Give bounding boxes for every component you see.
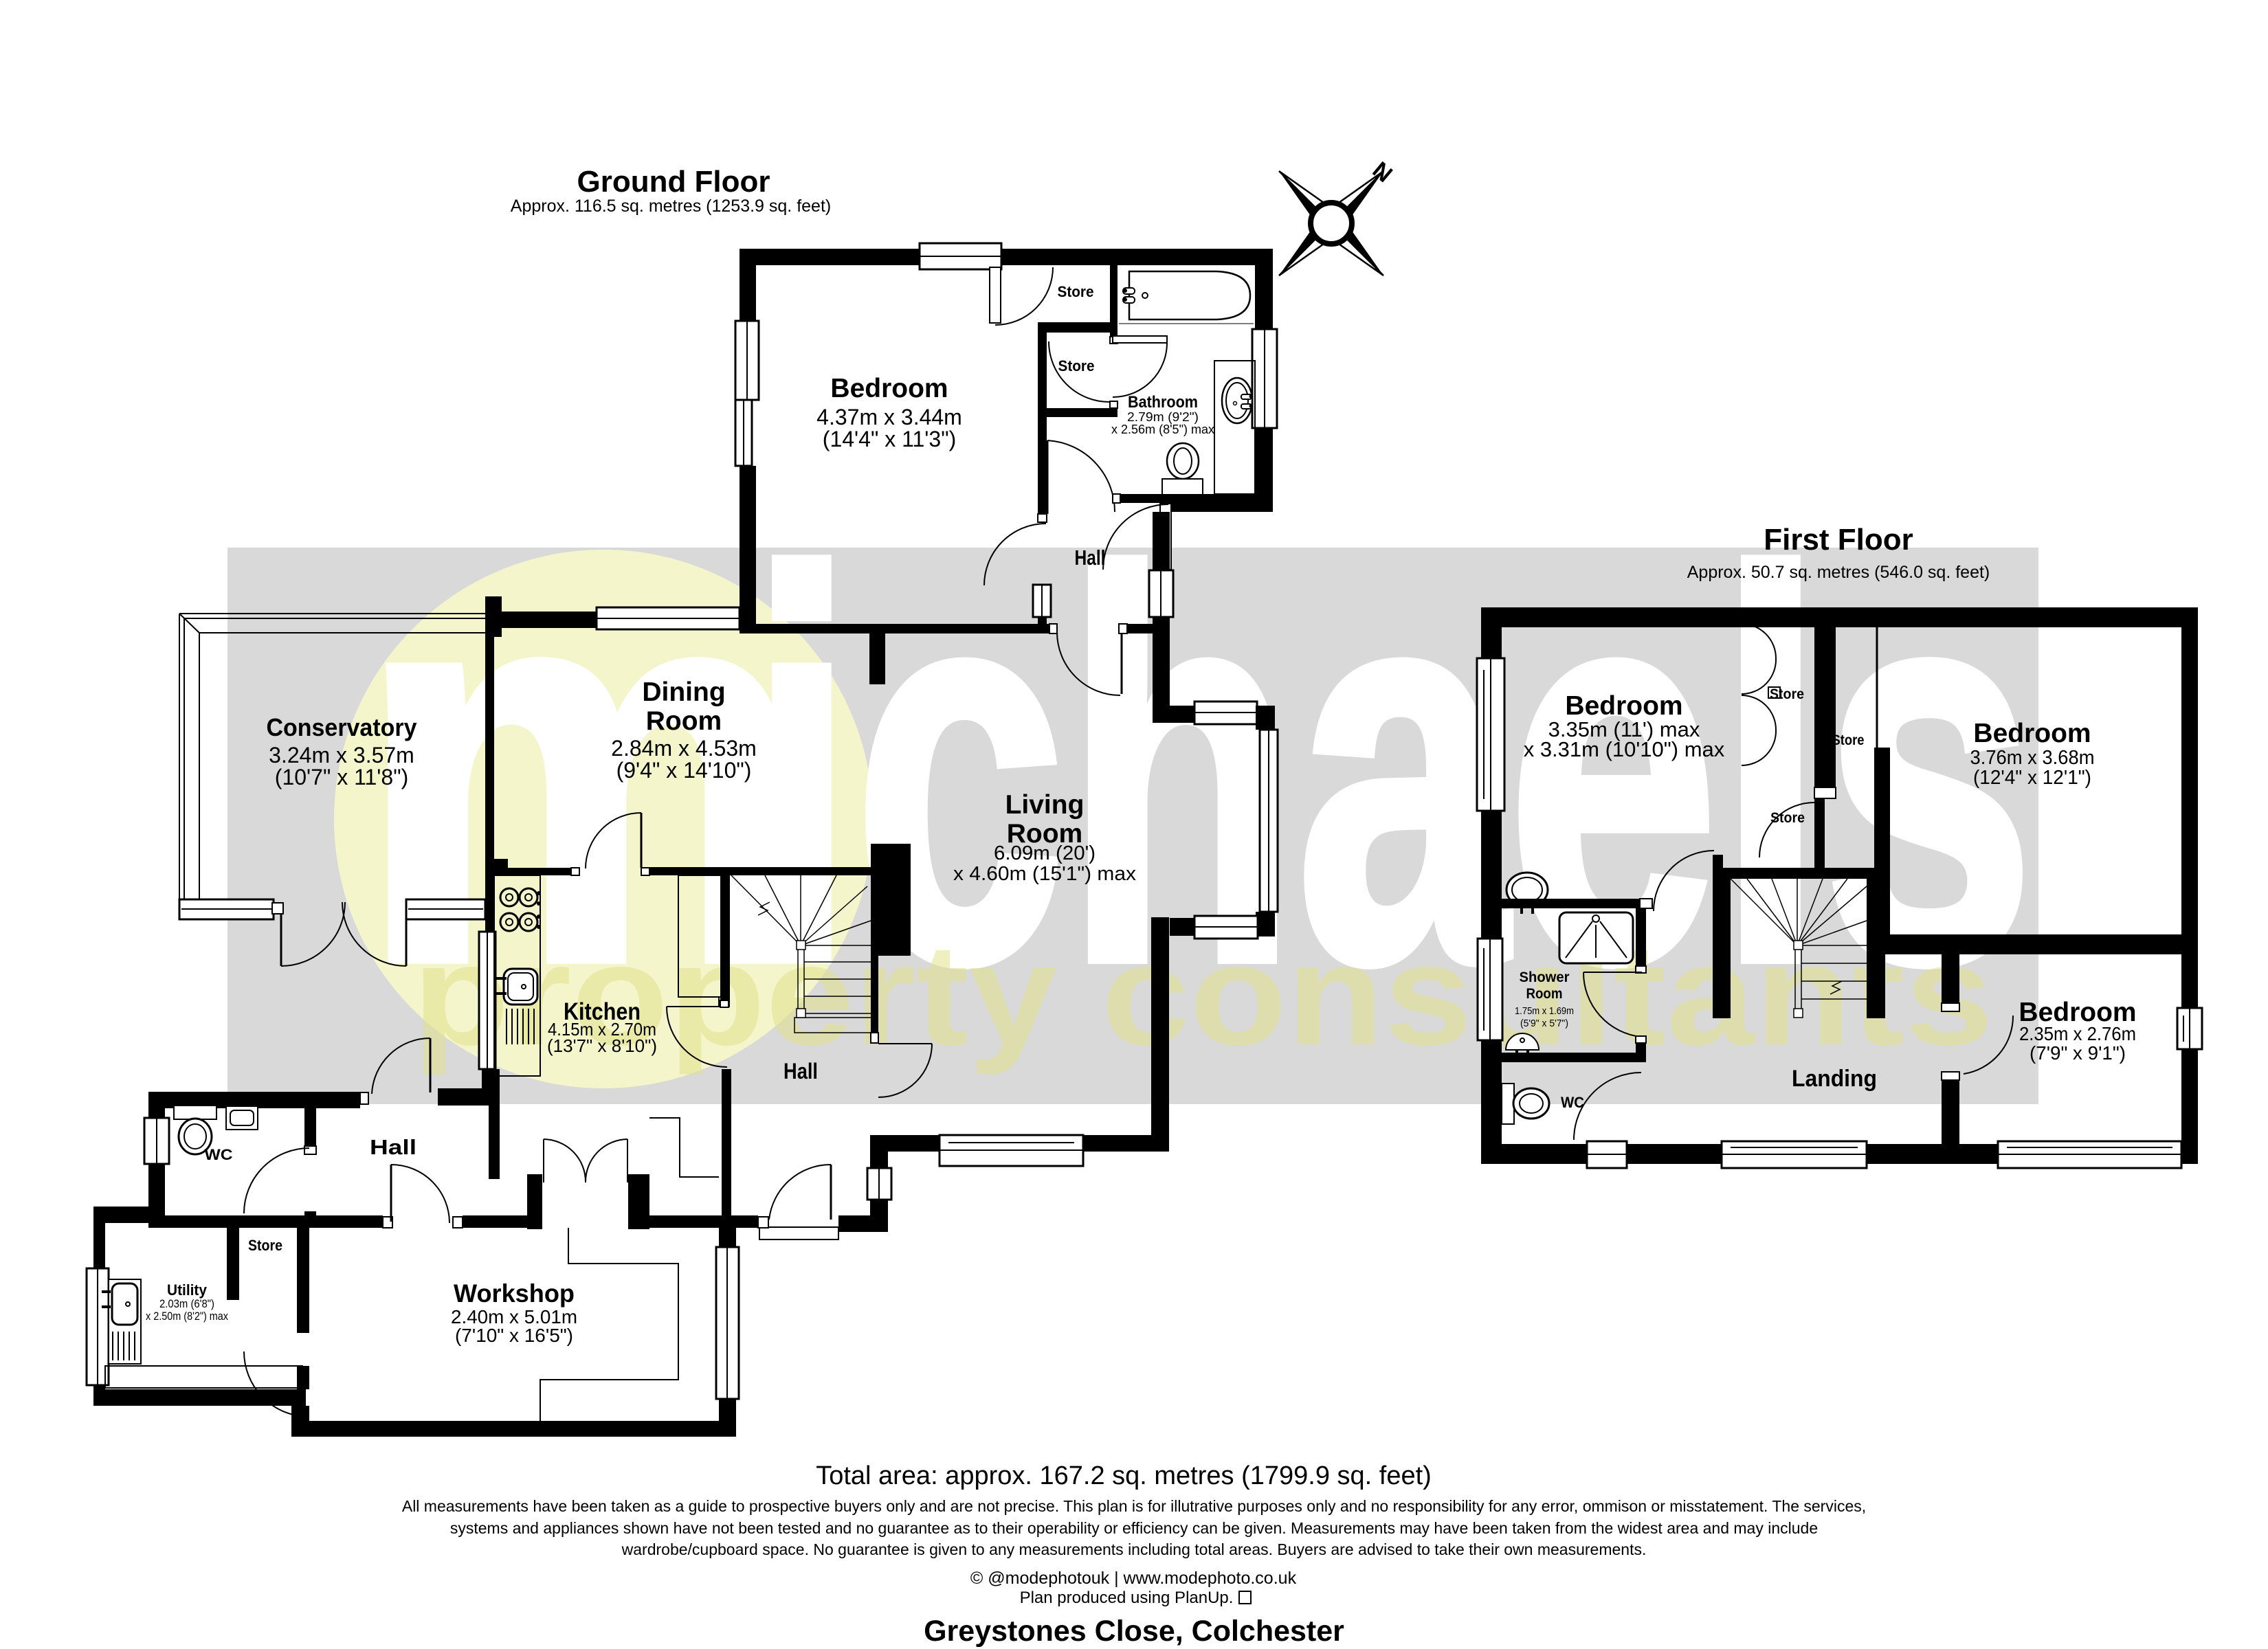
svg-text:2.84m x 4.53m: 2.84m x 4.53m	[611, 736, 757, 761]
svg-text:All measurements have been tak: All measurements have been taken as a gu…	[402, 1497, 1866, 1515]
svg-text:(7'10" x 16'5"): (7'10" x 16'5")	[455, 1325, 573, 1346]
svg-text:Conservatory: Conservatory	[267, 713, 417, 741]
svg-text:Room: Room	[1526, 986, 1563, 1002]
svg-text:2.79m (9'2"): 2.79m (9'2")	[1127, 410, 1199, 424]
svg-text:Hall: Hall	[1075, 546, 1106, 570]
svg-text:wardrobe/cupboard space. No gu: wardrobe/cupboard space. No guarantee is…	[621, 1540, 1647, 1558]
svg-text:WC: WC	[1561, 1094, 1584, 1111]
svg-text:WC: WC	[205, 1146, 233, 1163]
svg-text:4.37m x 3.44m: 4.37m x 3.44m	[816, 405, 962, 429]
svg-text:Store: Store	[248, 1237, 282, 1254]
svg-text:(14'4" x 11'3"): (14'4" x 11'3")	[823, 427, 956, 451]
svg-text:2.35m x 2.76m: 2.35m x 2.76m	[2019, 1023, 2136, 1044]
svg-text:Hall: Hall	[783, 1059, 818, 1084]
svg-text:Living: Living	[1005, 790, 1085, 820]
svg-text:Bedroom: Bedroom	[1973, 719, 2091, 748]
svg-text:(12'4" x 12'1"): (12'4" x 12'1")	[1973, 767, 2091, 789]
svg-text:Approx. 50.7 sq. metres (546.0: Approx. 50.7 sq. metres (546.0 sq. feet)	[1687, 563, 1990, 582]
svg-text:Room: Room	[646, 706, 722, 736]
svg-text:Store: Store	[1832, 732, 1865, 748]
svg-text:Store: Store	[1770, 810, 1805, 826]
svg-text:Bedroom: Bedroom	[830, 374, 948, 403]
svg-text:© @modephotouk | www.modephoto: © @modephotouk | www.modephoto.co.uk	[970, 1569, 1297, 1588]
svg-text:Approx. 116.5 sq. metres (1253: Approx. 116.5 sq. metres (1253.9 sq. fee…	[511, 197, 831, 216]
svg-text:Utility: Utility	[167, 1281, 208, 1299]
svg-text:3.24m x 3.57m: 3.24m x 3.57m	[269, 743, 414, 767]
svg-text:(5'9" x 5'7"): (5'9" x 5'7")	[1520, 1018, 1568, 1029]
svg-text:3.76m x 3.68m: 3.76m x 3.68m	[1970, 747, 2095, 769]
svg-text:Store: Store	[1058, 283, 1094, 300]
svg-text:(7'9" x 9'1"): (7'9" x 9'1")	[2030, 1042, 2126, 1064]
svg-text:Store: Store	[1770, 686, 1804, 702]
svg-text:Workshop: Workshop	[454, 1279, 575, 1308]
svg-text:6.09m (20'): 6.09m (20')	[994, 842, 1096, 864]
svg-text:x 3.31m (10'10") max: x 3.31m (10'10") max	[1524, 737, 1725, 761]
svg-text:Landing: Landing	[1792, 1066, 1877, 1092]
svg-text:Bathroom: Bathroom	[1128, 393, 1198, 412]
svg-text:Total area: approx. 167.2 sq.: Total area: approx. 167.2 sq. metres (17…	[816, 1461, 1432, 1490]
svg-text:First Floor: First Floor	[1764, 523, 1913, 557]
svg-text:Store: Store	[1058, 357, 1095, 374]
svg-text:x 2.56m (8'5") max: x 2.56m (8'5") max	[1111, 423, 1214, 436]
svg-text:Bedroom: Bedroom	[1565, 691, 1682, 721]
svg-text:2.03m (6'8"): 2.03m (6'8")	[159, 1297, 214, 1310]
svg-text:(13'7" x 8'10"): (13'7" x 8'10")	[547, 1035, 657, 1056]
svg-text:Ground Floor: Ground Floor	[577, 165, 770, 199]
svg-text:(9'4" x 14'10"): (9'4" x 14'10")	[616, 758, 752, 783]
svg-text:Greystones Close, Colchester: Greystones Close, Colchester	[924, 1615, 1344, 1648]
svg-text:(10'7" x 11'8"): (10'7" x 11'8")	[275, 765, 408, 789]
svg-text:x 2.50m (8'2") max: x 2.50m (8'2") max	[146, 1310, 228, 1323]
svg-text:Hall: Hall	[370, 1135, 416, 1159]
svg-text:Dining: Dining	[642, 677, 725, 707]
svg-text:1.75m x 1.69m: 1.75m x 1.69m	[1515, 1005, 1574, 1017]
svg-text:Shower: Shower	[1520, 969, 1570, 985]
svg-text:systems and appliances shown h: systems and appliances shown have not be…	[450, 1519, 1818, 1537]
svg-text:Plan produced using PlanUp.: Plan produced using PlanUp.	[1020, 1589, 1234, 1607]
svg-text:x 4.60m (15'1") max: x 4.60m (15'1") max	[953, 863, 1137, 885]
